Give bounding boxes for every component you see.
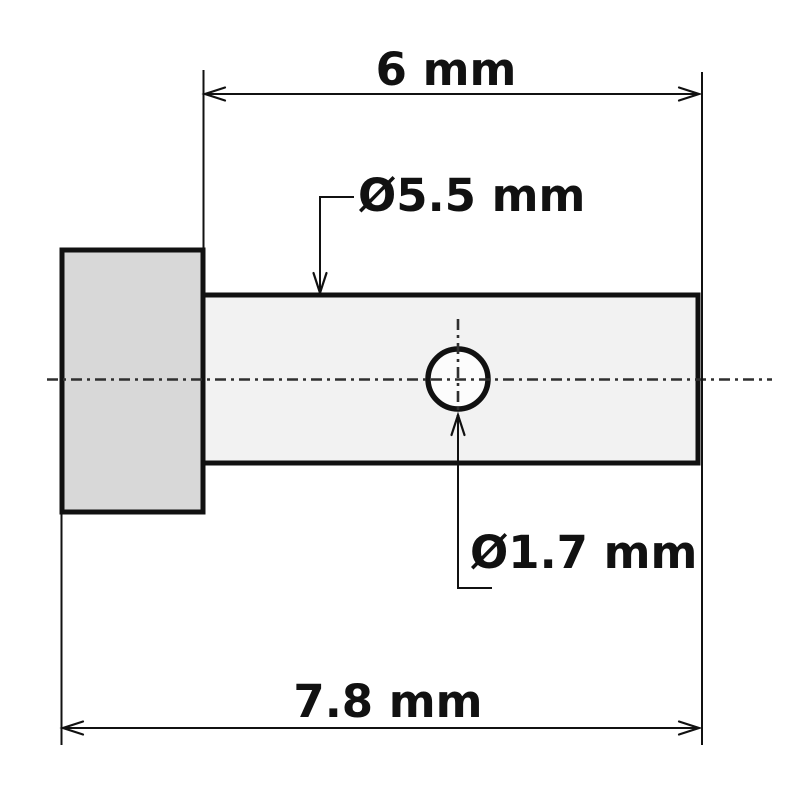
pin-head xyxy=(62,250,203,512)
shaft-length-label: 6 mm xyxy=(376,43,517,96)
pin-part xyxy=(62,250,698,512)
technical-drawing: 6 mm Ø5.5 mm Ø1.7 mm 7.8 mm xyxy=(0,0,800,800)
overall-length-label: 7.8 mm xyxy=(293,675,482,728)
shaft-diameter-label: Ø5.5 mm xyxy=(358,169,585,222)
dimension-shaft-diameter: Ø5.5 mm xyxy=(314,169,586,293)
hole-diameter-label: Ø1.7 mm xyxy=(470,526,697,579)
